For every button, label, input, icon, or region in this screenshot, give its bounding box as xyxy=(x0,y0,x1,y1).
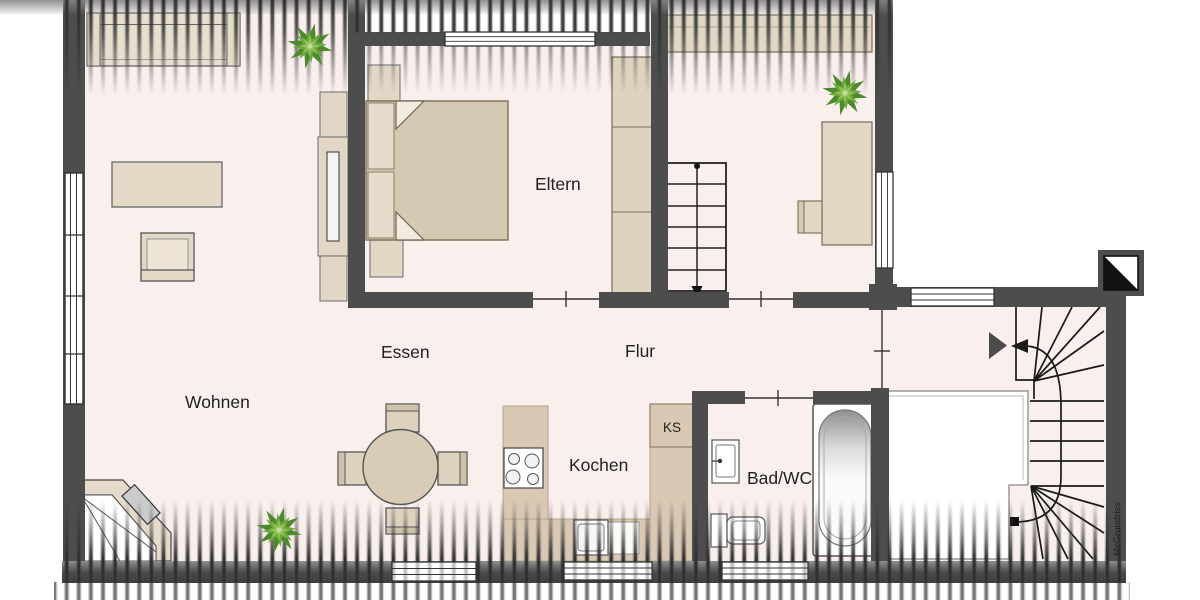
svg-text:Flur: Flur xyxy=(625,341,655,361)
svg-text:Essen: Essen xyxy=(381,342,430,362)
svg-text:KS: KS xyxy=(663,420,681,435)
svg-text:Kochen: Kochen xyxy=(569,455,628,475)
svg-text:Bad/WC: Bad/WC xyxy=(747,468,812,488)
svg-text:Eltern: Eltern xyxy=(535,174,581,194)
svg-text:McGrundriss: McGrundriss xyxy=(1112,502,1123,556)
svg-text:Wohnen: Wohnen xyxy=(185,392,250,412)
